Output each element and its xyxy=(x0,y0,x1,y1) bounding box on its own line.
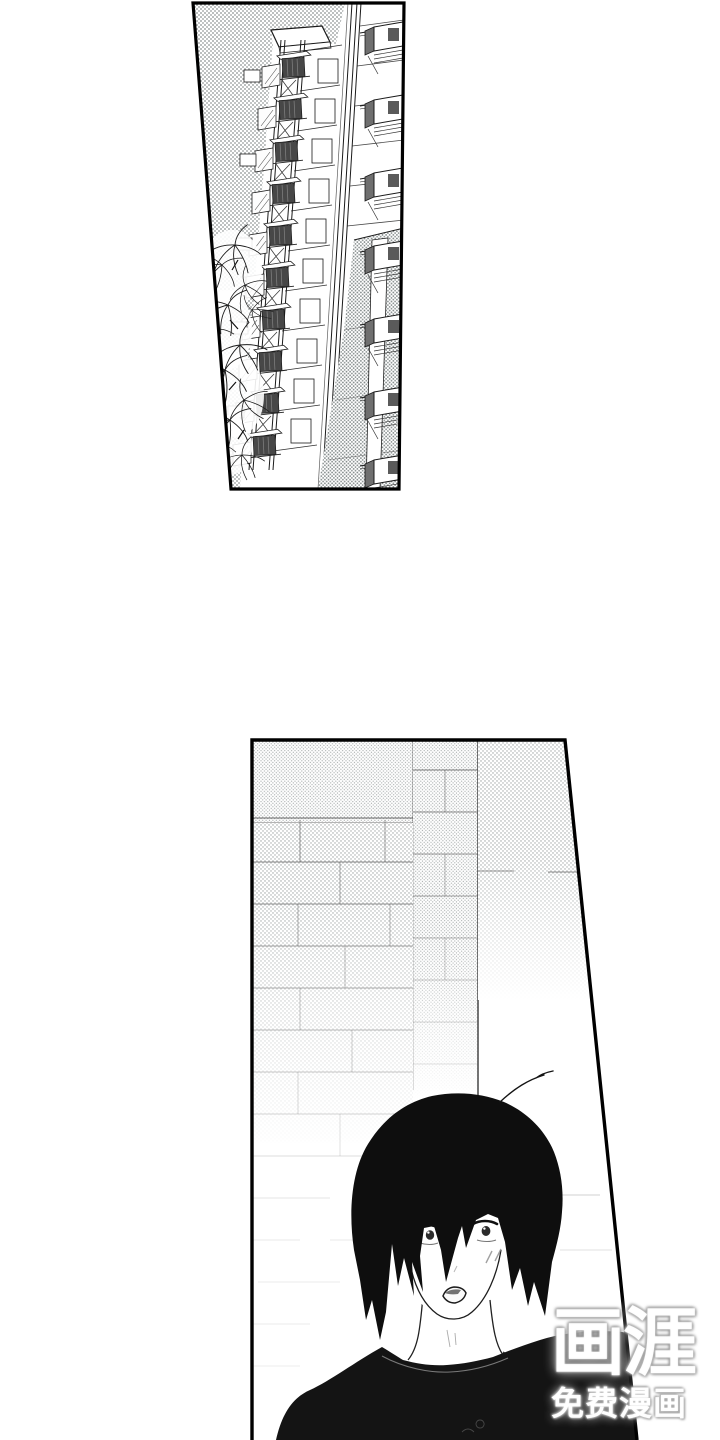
manga-page[interactable]: 画涯 免费漫画 xyxy=(0,0,720,1440)
manga-artwork xyxy=(0,0,720,1440)
panel-character-brick-wall xyxy=(252,738,642,1440)
panel-building-exterior xyxy=(181,0,408,507)
